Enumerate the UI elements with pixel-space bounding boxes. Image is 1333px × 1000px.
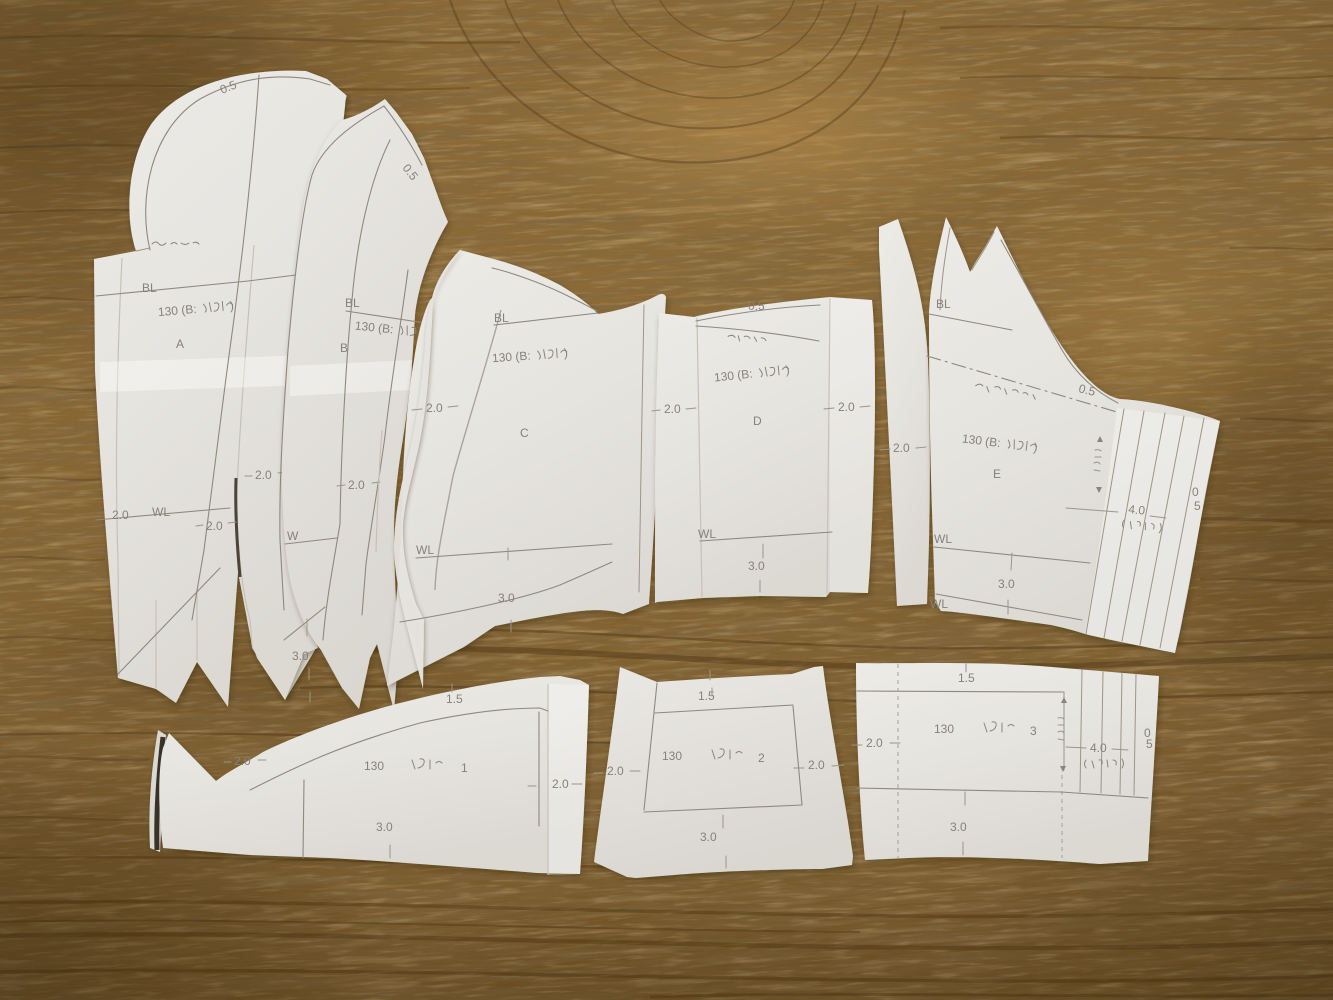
svg-text:1.5: 1.5 bbox=[958, 671, 975, 685]
svg-text:0.5: 0.5 bbox=[748, 299, 765, 313]
svg-text:2.0: 2.0 bbox=[206, 519, 223, 533]
svg-text:2.0: 2.0 bbox=[234, 754, 251, 768]
svg-text:3: 3 bbox=[1030, 724, 1037, 738]
svg-text:BL: BL bbox=[142, 281, 157, 295]
svg-text:1.5: 1.5 bbox=[446, 692, 463, 706]
svg-text:BL: BL bbox=[494, 311, 509, 325]
svg-text:WL: WL bbox=[698, 527, 716, 541]
svg-text:WL: WL bbox=[930, 597, 948, 611]
svg-text:D: D bbox=[753, 414, 762, 428]
svg-text:3.0: 3.0 bbox=[950, 820, 967, 834]
svg-text:A: A bbox=[176, 337, 184, 351]
svg-text:WL: WL bbox=[152, 505, 170, 519]
svg-text:E: E bbox=[993, 467, 1001, 481]
svg-text:WL: WL bbox=[934, 532, 952, 546]
svg-text:130: 130 bbox=[934, 722, 954, 736]
svg-text:BL: BL bbox=[345, 296, 360, 310]
svg-text:3.0: 3.0 bbox=[498, 591, 515, 605]
svg-text:5: 5 bbox=[1146, 737, 1153, 751]
svg-text:2.0: 2.0 bbox=[255, 468, 272, 482]
svg-text:2.0: 2.0 bbox=[664, 402, 681, 416]
svg-text:2.0: 2.0 bbox=[866, 736, 883, 750]
svg-text:2.0: 2.0 bbox=[426, 401, 443, 415]
svg-text:3.0: 3.0 bbox=[376, 820, 393, 834]
svg-text:3.0: 3.0 bbox=[748, 559, 765, 573]
svg-text:WL: WL bbox=[416, 543, 434, 557]
svg-text:130: 130 bbox=[364, 759, 384, 773]
svg-text:2.0: 2.0 bbox=[607, 764, 624, 778]
svg-text:2.0: 2.0 bbox=[893, 441, 910, 455]
svg-text:0: 0 bbox=[1192, 485, 1199, 499]
svg-text:130: 130 bbox=[662, 749, 682, 763]
svg-text:1: 1 bbox=[461, 761, 468, 775]
svg-text:3.0: 3.0 bbox=[700, 830, 717, 844]
svg-text:3.0: 3.0 bbox=[998, 577, 1015, 591]
svg-text:4.0: 4.0 bbox=[1090, 741, 1107, 755]
svg-text:W: W bbox=[287, 529, 299, 543]
svg-text:C: C bbox=[520, 426, 529, 440]
svg-text:2.0: 2.0 bbox=[348, 478, 365, 492]
svg-text:4.0: 4.0 bbox=[1128, 502, 1146, 518]
svg-text:2: 2 bbox=[758, 751, 765, 765]
svg-text:2.0: 2.0 bbox=[112, 508, 129, 522]
svg-text:2.0: 2.0 bbox=[838, 400, 855, 414]
svg-text:BL: BL bbox=[936, 297, 951, 311]
svg-text:5: 5 bbox=[1194, 499, 1201, 513]
svg-text:2.0: 2.0 bbox=[808, 758, 825, 772]
svg-text:B: B bbox=[340, 341, 348, 355]
svg-text:2.0: 2.0 bbox=[552, 777, 569, 791]
svg-text:130 (B:: 130 (B: bbox=[492, 349, 532, 366]
svg-text:3.0: 3.0 bbox=[292, 649, 309, 663]
